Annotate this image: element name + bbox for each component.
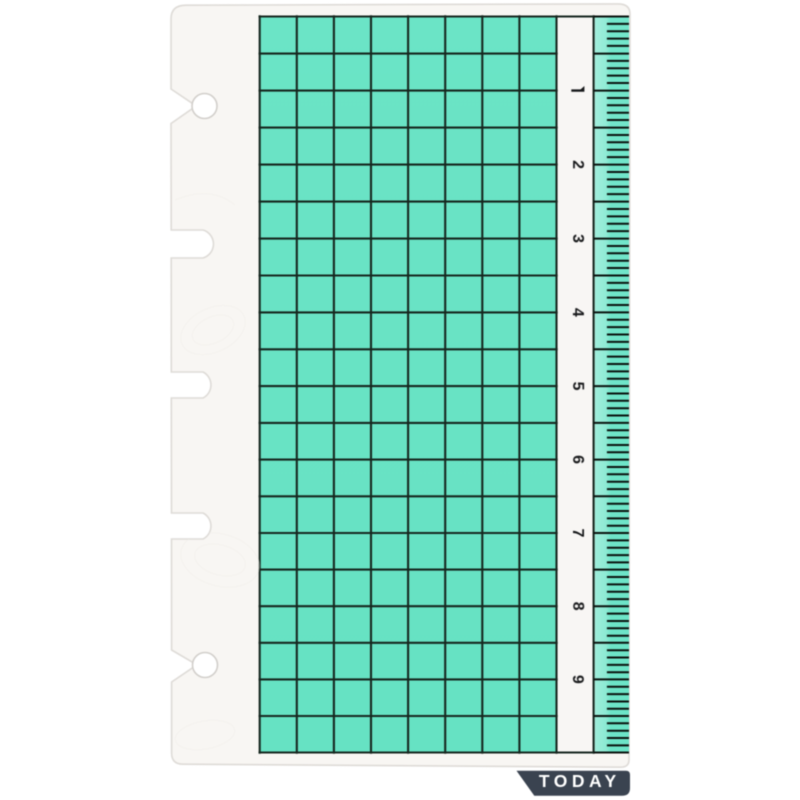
svg-text:2: 2 — [569, 160, 586, 169]
svg-text:5: 5 — [569, 382, 586, 391]
svg-text:4: 4 — [569, 308, 586, 317]
svg-text:TODAY: TODAY — [539, 771, 621, 791]
svg-text:7: 7 — [569, 529, 586, 538]
svg-text:6: 6 — [569, 455, 586, 464]
svg-text:9: 9 — [569, 675, 586, 684]
svg-text:8: 8 — [569, 602, 586, 611]
svg-text:3: 3 — [569, 234, 586, 243]
